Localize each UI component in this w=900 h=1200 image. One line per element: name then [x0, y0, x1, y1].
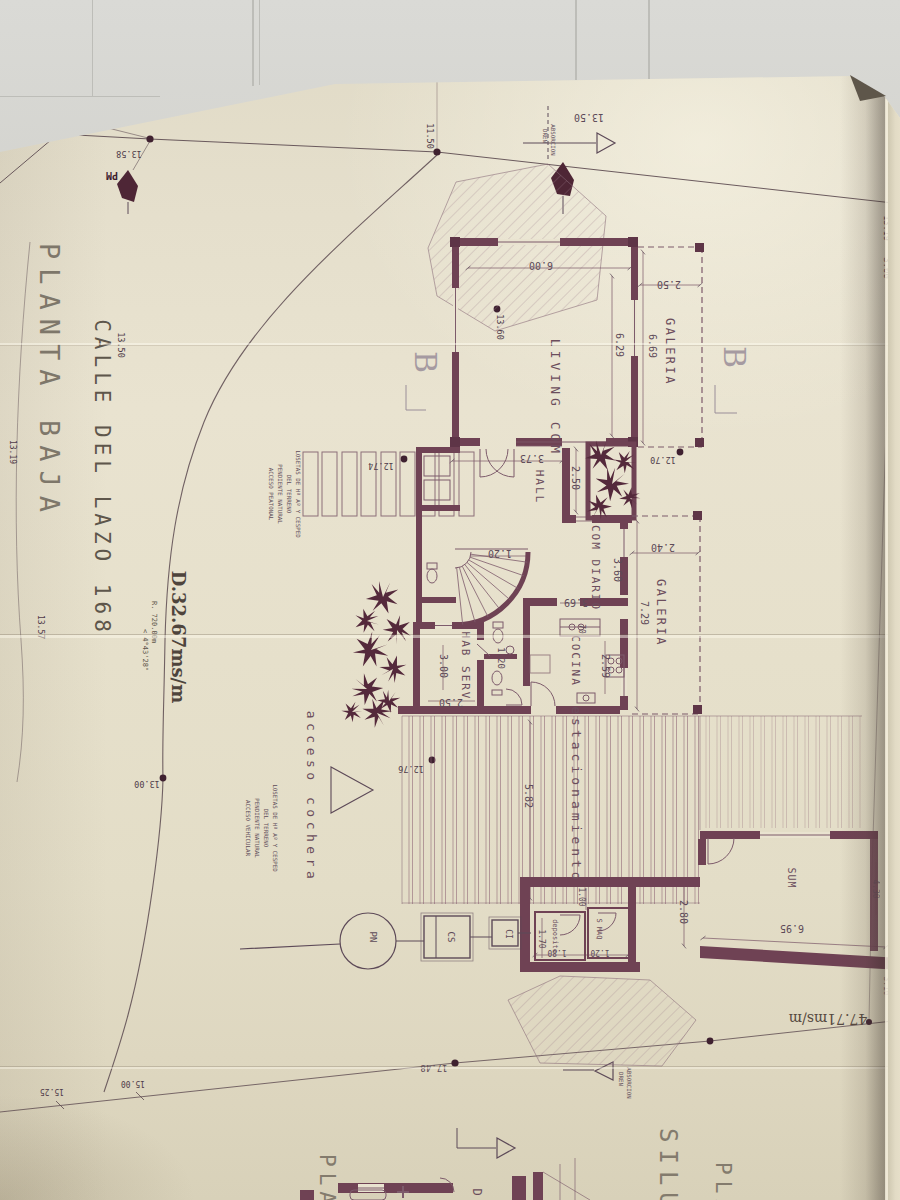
note-absorcion-2: ABSORCION [626, 1067, 632, 1099]
label-cs: CS [446, 932, 456, 943]
dim-2.50-hab: 2.50 [439, 697, 463, 708]
note-acceso-vehicular-4: LOSETAS DE Hº Aº Y CESPED [272, 784, 278, 872]
section-arrow-icon [497, 1138, 515, 1158]
driveway-arrow-icon [331, 767, 373, 813]
note-acceso-peatonal-2: PENDIENTE NATURAL [277, 464, 283, 524]
street-label: CALLE DEL LAZO 168 [90, 319, 114, 637]
room-label-s-maq: S MAQ [595, 918, 603, 939]
elev-11.50-b: 11.50 [425, 123, 435, 149]
folded-paper-strip [888, 92, 900, 1200]
room-label-com-diario: COM DIARIO [589, 525, 602, 611]
photo-of-floor-plan: { "legend": { "title": "PLANTA BAJA", "s… [0, 0, 900, 1200]
tile-grout-line [92, 0, 93, 97]
dim-6.00: 6.00 [529, 260, 553, 271]
label-ci: CI [504, 929, 513, 939]
dim-3.73: 3.73 [520, 453, 544, 464]
tile-grout-line [648, 0, 650, 79]
silueta-label: SILUETA [654, 1128, 682, 1200]
dim-13.50-top: 13.50 [574, 112, 604, 123]
pm-label: PM [106, 170, 118, 181]
room-label-deposito: deposito [551, 919, 559, 953]
tile-grout-line [252, 0, 254, 86]
dim-3.60: 3.60 [612, 558, 623, 582]
section-letter-b: B [717, 346, 752, 368]
galeria-posts [693, 243, 704, 714]
dim-1.70: 1.70 [537, 929, 546, 948]
tile-grout-line [0, 96, 160, 97]
dim-1.80: 1.80 [547, 948, 566, 957]
note-dren: DREN [542, 129, 548, 143]
paper-crease [0, 635, 900, 638]
note-dren-2: DREN [618, 1072, 624, 1086]
curved-stair [455, 549, 528, 625]
room-label-d: D [470, 1188, 484, 1195]
dim-6.69: 6.69 [647, 334, 658, 358]
note-acceso-vehicular-3: DEL TERRENO [263, 809, 269, 848]
room-label-living: LIVING COM [548, 339, 563, 457]
dim-2.50-galeria: 2.50 [657, 279, 681, 290]
note-absorcion: ABSORCION [550, 124, 556, 156]
note-acceso-peatonal-1: ACCESO PEATONAL [268, 468, 274, 521]
plan-paper: PLANTA BAJA CALLE DEL LAZO 168 D.32.67ms… [0, 0, 900, 1200]
dim-6.95: 6.95 [780, 923, 804, 934]
drain-field-hatch [508, 976, 696, 1066]
elev-12.76: 12.76 [398, 764, 424, 774]
dim-1.20-stair: 1.20 [488, 548, 512, 559]
note-acceso-vehicular-2: PENDIENTE NATURAL [254, 798, 260, 858]
elev-13.58: 13.58 [116, 149, 142, 159]
dim-7.29: 7.29 [639, 601, 650, 625]
floor-plan-drawing: PLANTA BAJA CALLE DEL LAZO 168 D.32.67ms… [0, 0, 900, 1200]
note-acceso-peatonal-4: LOSETAS DE Hº Aº Y CESPED [295, 450, 301, 538]
bottom-plan-fragment [300, 1158, 590, 1200]
room-label-galeria: GALERIA [663, 318, 677, 386]
room-label-acceso-cochera: acceso cochera [304, 711, 319, 884]
note-acceso-vehicular-1: ACCESO VEHICULAR [245, 800, 251, 856]
elev-12.70: 12.70 [650, 455, 676, 465]
dim-2.40: 2.40 [651, 542, 675, 553]
plan-title: PLANTA BAJA [34, 243, 65, 521]
dim-3.69: 3.69 [564, 597, 588, 608]
dim-1.00: 1.00 [577, 887, 586, 906]
dim-1.20-bath: 1.20 [496, 647, 506, 669]
planta-alta-label-2: PLANTA [711, 1162, 735, 1200]
room-label-hab-serv: HAB SERV [459, 632, 472, 701]
dim-3.00-hab: 3.00 [438, 654, 449, 678]
septic-system [240, 913, 531, 969]
paper-crease [0, 345, 900, 346]
room-label-estacionamiento: estacionamiento [569, 706, 584, 883]
tree-icon [117, 170, 138, 202]
label-pn: PN [368, 932, 378, 943]
tile-grout-line [259, 0, 260, 85]
elev-12.74: 12.74 [368, 461, 394, 471]
paper-shadow [0, 1040, 330, 1200]
room-label-sum: SUM [786, 867, 797, 888]
room-label-cocina: COCINA [569, 635, 582, 687]
dim-5.82: 5.82 [523, 784, 534, 808]
dim-2.59: 2.59 [600, 654, 611, 678]
elev-13.19-edge: 13.19 [8, 440, 17, 464]
elev-13.00: 13.00 [134, 779, 160, 789]
dim-1.20-maq: 1.20 [590, 948, 609, 957]
note-acceso-peatonal-3: DEL TERRENO [286, 475, 292, 514]
section-letter-b: B [408, 351, 443, 373]
dim-2.50-court: 2.50 [570, 466, 581, 490]
dim-2.80: 2.80 [678, 900, 689, 924]
dim-70: 70 [577, 624, 586, 634]
elev-13.60: 13.60 [495, 314, 505, 340]
section-arrow-icon [597, 133, 615, 153]
paper-fold-shadow [840, 74, 886, 1200]
tile-grout-line [575, 0, 577, 80]
room-label-hall: HALL [533, 470, 546, 505]
